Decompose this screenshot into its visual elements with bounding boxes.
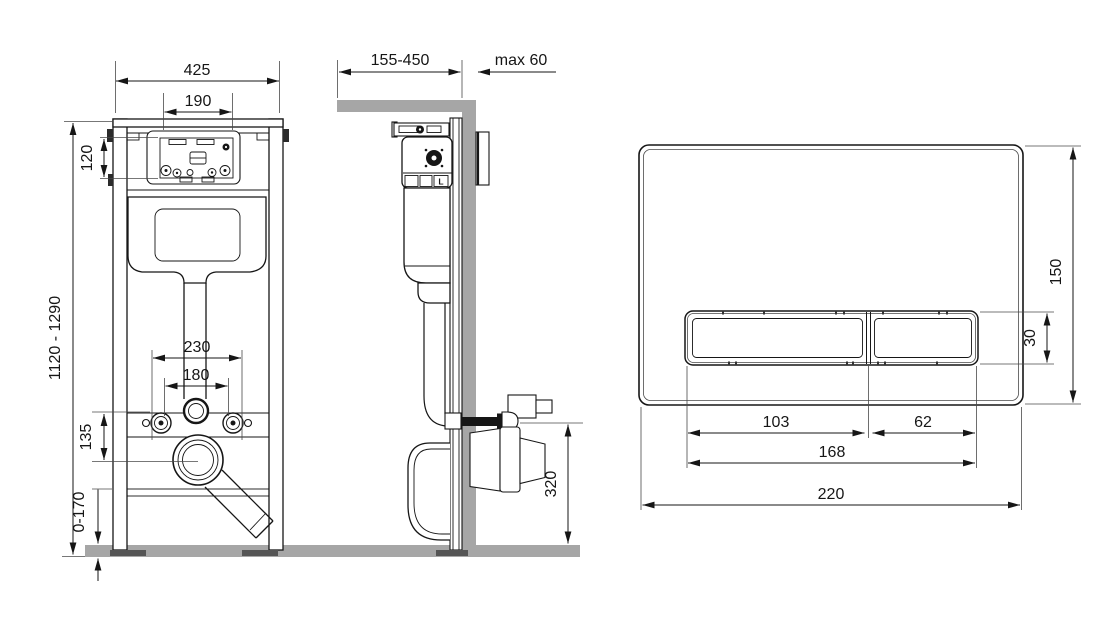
dim-label-height-range: 1120 - 1290	[47, 296, 64, 380]
frame-left-rail	[113, 119, 127, 550]
dim-label-outlet-offset: 135	[78, 424, 95, 451]
dim-wall-thickness: max 60	[478, 52, 556, 72]
dim-buttons-width: 168	[688, 444, 975, 463]
access-opening	[147, 131, 240, 184]
supply-threaded-rod	[461, 417, 498, 426]
cistern-tank-side	[404, 188, 450, 283]
front-view: 425 190 120 1120 - 1290 230	[47, 61, 289, 581]
wall-anchor-stub-right	[283, 129, 289, 142]
finished-floor	[85, 545, 580, 557]
dim-label-opening-height: 120	[79, 145, 96, 172]
dim-label-feet-adjustment: 0-170	[71, 491, 88, 532]
connections-front	[143, 399, 274, 538]
flush-plate	[639, 145, 1023, 405]
ceiling-ledge	[337, 100, 476, 112]
dim-label-drain-spacing: 180	[183, 367, 210, 384]
dim-label-wall-thickness: max 60	[495, 52, 548, 69]
side-view: L 155-450	[337, 52, 583, 556]
cistern-neck	[418, 283, 450, 303]
valve-marking-label: L	[438, 177, 443, 187]
frame-right-rail	[269, 119, 283, 550]
access-box-outer	[147, 131, 240, 184]
button-group	[685, 311, 978, 365]
dim-label-frame-width: 425	[184, 62, 211, 79]
foot-left	[110, 550, 146, 556]
flush-outlet-flange	[184, 399, 208, 423]
outlet-horn	[470, 429, 500, 492]
dim-label-fixing-spacing: 230	[184, 339, 211, 356]
frame-top-bar	[113, 119, 283, 127]
dim-feet-adjustment: 0-170	[71, 489, 112, 581]
mounting-frame-front	[107, 119, 289, 556]
flush-connector	[445, 413, 461, 429]
foot-side	[436, 550, 468, 556]
dim-label-opening-width: 190	[185, 93, 212, 110]
dim-label-depth-range: 155-450	[371, 52, 430, 69]
dim-label-button-height: 30	[1022, 329, 1039, 347]
dim-height-range: 1120 - 1290	[47, 122, 113, 557]
dim-label-outlet-height: 320	[543, 471, 560, 498]
cistern-tank	[128, 197, 266, 283]
waste-outlet	[173, 435, 223, 485]
top-wall-bracket	[392, 122, 449, 137]
wall-anchor-stub-left	[107, 129, 113, 142]
dim-label-large-button-width: 103	[763, 414, 790, 431]
dim-plate-height: 150	[1025, 146, 1081, 404]
corner-bracket-left	[127, 133, 139, 140]
technical-drawing: 425 190 120 1120 - 1290 230	[0, 0, 1120, 626]
dim-label-plate-height: 150	[1048, 259, 1065, 286]
dim-label-buttons-width: 168	[819, 444, 846, 461]
dim-depth-range: 155-450	[338, 52, 463, 98]
technical-drawing-canvas: 425 190 120 1120 - 1290 230	[0, 0, 1120, 626]
dim-label-plate-width: 220	[818, 486, 845, 503]
rail-clip	[108, 174, 113, 186]
filling-valve-unit: L	[402, 137, 452, 188]
flush-plate-view: 150 30 103 62 168 220	[639, 145, 1081, 510]
button-trim	[685, 311, 978, 365]
corner-bracket-right	[257, 133, 269, 140]
dim-label-small-button-width: 62	[914, 414, 932, 431]
foot-right	[242, 550, 278, 556]
outlet-flange-side	[500, 427, 520, 492]
outlet-socket	[520, 438, 545, 484]
flush-pipe-side	[424, 303, 446, 426]
